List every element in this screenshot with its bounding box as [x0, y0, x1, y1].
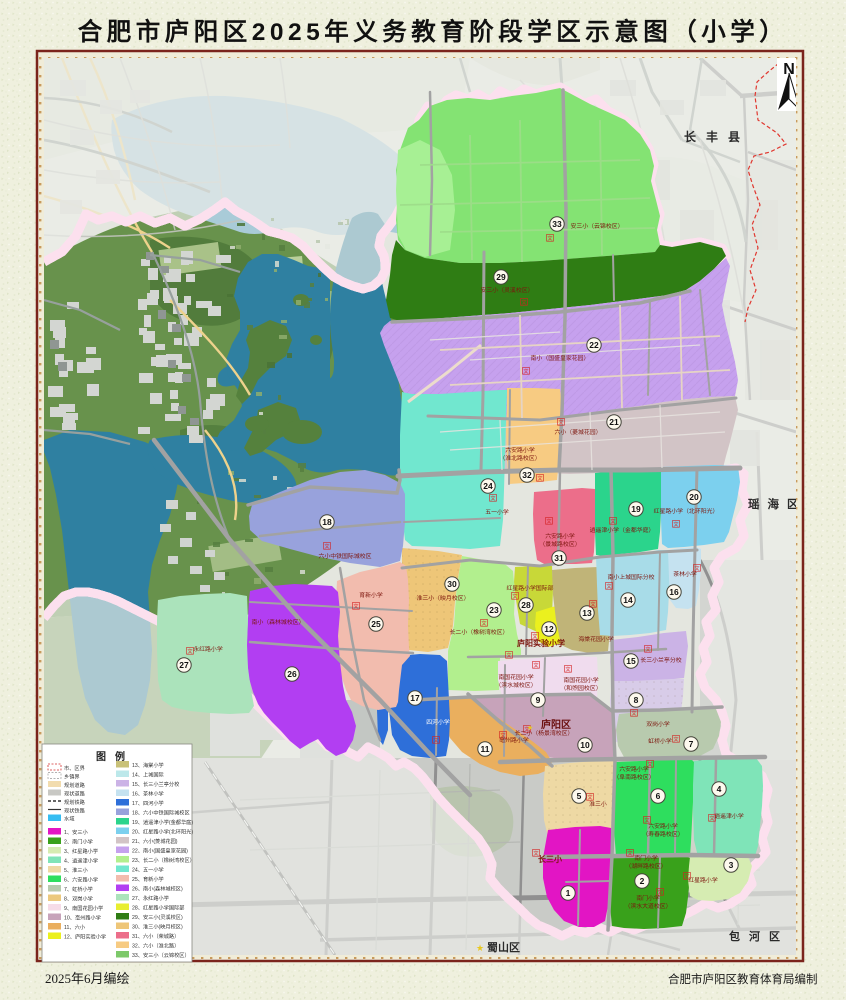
svg-text:11、六小: 11、六小 [64, 923, 86, 931]
svg-text:19、逍遥津小学(金都华庭): 19、逍遥津小学(金都华庭) [132, 818, 193, 826]
svg-text:海棠花园小学: 海棠花园小学 [578, 635, 613, 643]
svg-text:包河区: 包河区 [728, 929, 789, 943]
svg-text:5、淮三小: 5、淮三小 [64, 866, 88, 874]
svg-text:9: 9 [536, 695, 541, 705]
svg-text:现状铁路: 现状铁路 [64, 807, 86, 815]
svg-text:文: 文 [546, 517, 552, 525]
svg-text:文: 文 [353, 602, 359, 610]
svg-text:8、双岗小学: 8、双岗小学 [64, 895, 93, 903]
svg-text:17: 17 [410, 693, 420, 703]
svg-text:虹桥小学: 虹桥小学 [648, 737, 672, 745]
svg-text:24、五一小学: 24、五一小学 [132, 866, 164, 874]
svg-text:文: 文 [558, 418, 564, 426]
svg-text:水域: 水域 [64, 815, 74, 823]
svg-text:文: 文 [694, 564, 700, 572]
svg-text:规划道路: 规划道路 [64, 781, 86, 789]
svg-text:文: 文 [590, 600, 596, 608]
svg-text:文: 文 [547, 234, 553, 242]
svg-text:15、长三小兰亭分校: 15、长三小兰亭分校 [132, 780, 179, 788]
svg-text:文: 文 [644, 816, 650, 824]
svg-text:9、南国花园小学: 9、南国花园小学 [64, 904, 103, 912]
svg-text:长三小: 长三小 [538, 854, 562, 864]
svg-text:红星路小学国际部: 红星路小学国际部 [506, 584, 553, 592]
svg-text:（淮北路校区）: （淮北路校区） [499, 454, 540, 462]
svg-text:10: 10 [580, 740, 590, 750]
svg-text:6、六安路小学: 6、六安路小学 [64, 876, 98, 884]
svg-text:红星路小学（北环阳光）: 红星路小学（北环阳光） [654, 507, 719, 515]
svg-text:25、育新小学: 25、育新小学 [132, 875, 164, 883]
svg-text:33、安三小（云锦校区）: 33、安三小（云锦校区） [132, 951, 190, 959]
svg-text:茶林小学: 茶林小学 [673, 570, 697, 578]
svg-text:乡镇界: 乡镇界 [64, 773, 80, 781]
svg-text:（湖畔路校区）: （湖畔路校区） [625, 862, 666, 870]
svg-text:4、逍遥津小学: 4、逍遥津小学 [64, 857, 98, 865]
svg-text:16、茶林小学: 16、茶林小学 [132, 790, 164, 798]
svg-text:7: 7 [689, 739, 694, 749]
svg-text:8: 8 [634, 695, 639, 705]
svg-text:33: 33 [552, 219, 562, 229]
svg-text:淮三小（映月校区）: 淮三小（映月校区） [416, 594, 469, 602]
svg-text:27: 27 [179, 660, 189, 670]
svg-text:30、淮三小(映月校区): 30、淮三小(映月校区) [132, 923, 183, 931]
svg-text:文: 文 [606, 582, 612, 590]
svg-text:1: 1 [566, 888, 571, 898]
svg-text:文: 文 [433, 736, 439, 744]
svg-text:23: 23 [489, 605, 499, 615]
svg-text:逍遥津小学: 逍遥津小学 [714, 812, 744, 820]
svg-text:六安路小学: 六安路小学 [505, 446, 535, 454]
svg-text:（滨水城校区）: （滨水城校区） [495, 681, 536, 689]
svg-text:红星路小学: 红星路小学 [688, 876, 718, 884]
svg-text:文: 文 [657, 888, 663, 896]
svg-text:14、上城国际: 14、上城国际 [132, 771, 164, 779]
svg-text:1、安三小: 1、安三小 [64, 828, 88, 836]
svg-text:长二小（橡树湾校区）: 长二小（橡树湾校区） [450, 628, 509, 636]
svg-text:文: 文 [521, 298, 527, 306]
svg-text:亳州路小学: 亳州路小学 [499, 736, 529, 744]
svg-text:现状道路: 现状道路 [64, 790, 86, 798]
svg-text:南小（森林城校区）: 南小（森林城校区） [251, 618, 304, 626]
svg-text:安三小（云锦校区）: 安三小（云锦校区） [570, 222, 623, 230]
svg-text:★: ★ [476, 943, 484, 953]
svg-text:18、六小中铁国际城校区: 18、六小中铁国际城校区 [132, 809, 190, 817]
svg-text:市、区界: 市、区界 [64, 764, 85, 772]
svg-text:南门小学: 南门小学 [634, 854, 658, 862]
svg-text:29: 29 [496, 272, 506, 282]
svg-text:25: 25 [371, 619, 381, 629]
svg-text:文: 文 [673, 520, 679, 528]
svg-text:21: 21 [609, 417, 619, 427]
svg-text:南小上城国际分校: 南小上城国际分校 [607, 573, 654, 581]
svg-text:7、虹桥小学: 7、虹桥小学 [64, 885, 93, 893]
svg-text:南门小学: 南门小学 [636, 894, 660, 902]
svg-text:（寿春路校区）: （寿春路校区） [642, 830, 683, 838]
svg-text:永红路小学: 永红路小学 [193, 645, 223, 653]
svg-text:长三小兰亭分校: 长三小兰亭分校 [640, 656, 681, 664]
svg-text:南国花园小学: 南国花园小学 [563, 676, 598, 684]
svg-text:规划铁路: 规划铁路 [64, 798, 86, 806]
svg-text:32、六小（淮北路）: 32、六小（淮北路） [132, 942, 179, 950]
svg-text:庐阳实验小学: 庐阳实验小学 [517, 638, 565, 648]
svg-text:29、安三小(灵溪校区): 29、安三小(灵溪校区) [132, 913, 183, 921]
svg-text:长丰县: 长丰县 [684, 129, 750, 144]
svg-text:文: 文 [631, 709, 637, 717]
svg-text:28、红星路小学国际部: 28、红星路小学国际部 [132, 904, 184, 912]
svg-text:13: 13 [582, 608, 592, 618]
svg-text:育新小学: 育新小学 [359, 591, 383, 599]
svg-text:16: 16 [669, 587, 679, 597]
svg-text:17、四河小学: 17、四河小学 [132, 799, 164, 807]
svg-text:11: 11 [481, 744, 490, 754]
svg-text:12: 12 [544, 624, 554, 634]
svg-text:六安路小学: 六安路小学 [545, 532, 575, 540]
svg-text:合肥市庐阳区教育体育局编制: 合肥市庐阳区教育体育局编制 [668, 972, 818, 986]
svg-text:2025年6月编绘: 2025年6月编绘 [45, 971, 130, 986]
svg-text:五一小学: 五一小学 [485, 508, 509, 516]
svg-text:13、海棠小学: 13、海棠小学 [132, 761, 164, 769]
svg-text:23、长二小（橡树湾校区）: 23、长二小（橡树湾校区） [132, 856, 195, 864]
svg-text:3: 3 [729, 860, 734, 870]
svg-text:26、南小(森林城校区): 26、南小(森林城校区) [132, 885, 183, 893]
svg-text:31: 31 [554, 553, 564, 563]
svg-text:六小中铁国际城校区: 六小中铁国际城校区 [318, 552, 371, 560]
svg-text:文: 文 [512, 592, 518, 600]
svg-text:文: 文 [533, 661, 539, 669]
svg-text:文: 文 [587, 793, 593, 801]
svg-text:22、南小(国盛皇家花园): 22、南小(国盛皇家花园) [132, 847, 188, 855]
svg-text:（滨水大道校区）: （滨水大道校区） [624, 902, 671, 910]
svg-text:24: 24 [483, 481, 493, 491]
svg-text:六小（菱城花园）: 六小（菱城花园） [554, 428, 601, 436]
svg-text:★: ★ [527, 724, 533, 732]
svg-text:12、庐阳实验小学: 12、庐阳实验小学 [64, 933, 106, 941]
svg-text:27、永红路小学: 27、永红路小学 [132, 894, 169, 902]
svg-text:15: 15 [626, 656, 636, 666]
svg-text:文: 文 [490, 494, 496, 502]
svg-text:文: 文 [645, 645, 651, 653]
svg-text:4: 4 [717, 784, 722, 794]
svg-text:2、南门小学: 2、南门小学 [64, 838, 93, 846]
svg-text:21、六小(菱城花园): 21、六小(菱城花园) [132, 837, 178, 845]
svg-text:庐阳区: 庐阳区 [541, 718, 571, 731]
svg-text:10、亳州路小学: 10、亳州路小学 [64, 914, 101, 922]
svg-text:文: 文 [537, 474, 543, 482]
svg-text:文: 文 [673, 735, 679, 743]
svg-text:（和煦园校区）: （和煦园校区） [560, 684, 601, 692]
svg-text:32: 32 [522, 470, 532, 480]
svg-text:四河小学: 四河小学 [426, 718, 450, 726]
svg-text:（景城路校区）: （景城路校区） [539, 540, 580, 548]
svg-text:14: 14 [623, 595, 633, 605]
svg-text:文: 文 [481, 619, 487, 627]
svg-text:文: 文 [324, 542, 330, 550]
svg-text:蜀山区: 蜀山区 [487, 940, 520, 954]
svg-text:22: 22 [589, 340, 599, 350]
svg-text:文: 文 [523, 367, 529, 375]
svg-text:文: 文 [565, 665, 571, 673]
svg-text:19: 19 [631, 504, 641, 514]
svg-text:26: 26 [287, 669, 297, 679]
svg-text:南小（国盛皇家花园）: 南小（国盛皇家花园） [531, 354, 590, 362]
svg-text:文: 文 [627, 849, 633, 857]
svg-text:文: 文 [506, 651, 512, 659]
svg-text:20: 20 [689, 492, 699, 502]
svg-text:合肥市庐阳区2025年义务教育阶段学区示意图（小学）: 合肥市庐阳区2025年义务教育阶段学区示意图（小学） [78, 17, 789, 46]
svg-text:3、红星路小学: 3、红星路小学 [64, 847, 98, 855]
svg-text:南国花园小学: 南国花园小学 [498, 673, 533, 681]
svg-text:逍遥津小学（金都华庭）: 逍遥津小学（金都华庭） [590, 526, 655, 534]
svg-text:31、六小（荣城路）: 31、六小（荣城路） [132, 932, 179, 940]
svg-text:30: 30 [447, 579, 457, 589]
svg-text:安三小（灵溪校区）: 安三小（灵溪校区） [480, 286, 533, 294]
svg-text:文: 文 [610, 517, 616, 525]
svg-text:28: 28 [521, 600, 531, 610]
svg-text:20、红星路小学(北环阳光): 20、红星路小学(北环阳光) [132, 828, 193, 836]
svg-text:5: 5 [577, 791, 582, 801]
svg-text:（阜南路校区）: （阜南路校区） [613, 773, 654, 781]
svg-text:六安路小学: 六安路小学 [648, 822, 678, 830]
svg-text:2: 2 [640, 876, 645, 886]
svg-text:双岗小学: 双岗小学 [646, 720, 670, 728]
svg-text:淮三小: 淮三小 [589, 800, 607, 808]
svg-text:18: 18 [322, 517, 332, 527]
svg-text:六安路小学: 六安路小学 [619, 765, 649, 773]
svg-text:6: 6 [656, 791, 661, 801]
